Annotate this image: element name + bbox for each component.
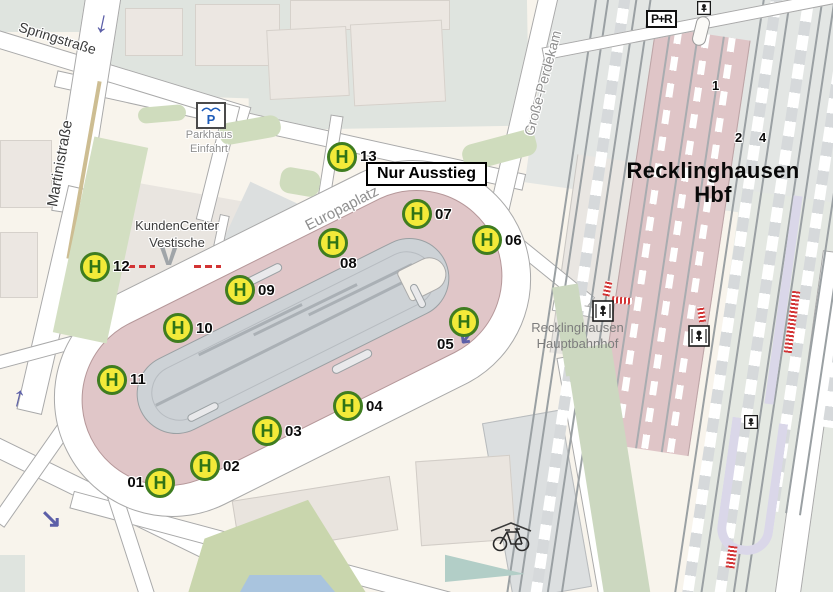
bus-stop-10-number: 10 (196, 320, 213, 337)
h-letter: H (481, 230, 494, 251)
elevator-icon (744, 415, 758, 434)
bus-stop-07: H (402, 199, 432, 229)
kundencenter-label: KundenCenter Vestische (123, 218, 231, 252)
h-letter: H (458, 312, 471, 333)
building (125, 8, 183, 56)
oneway-arrow-downright: ↘ (40, 505, 62, 531)
green-patch (137, 104, 186, 124)
h-letter: H (106, 370, 119, 391)
bus-stop-09: H (225, 275, 255, 305)
h-letter: H (327, 233, 340, 254)
h-letter: H (89, 257, 102, 278)
bicycle-parking-icon (487, 520, 535, 557)
building (0, 232, 38, 298)
bus-stop-08: H (318, 228, 348, 258)
bus-stop-05-number: 05 (437, 336, 454, 353)
h-letter: H (234, 280, 247, 301)
parking-p-letter: P (207, 112, 216, 127)
city-map: P P+R (0, 0, 833, 592)
bus-stop-12: H (80, 252, 110, 282)
green-patch (278, 166, 322, 199)
bus-stop-06-number: 06 (505, 232, 522, 249)
h-letter: H (154, 473, 167, 494)
bus-stop-13: H (327, 142, 357, 172)
pond (240, 575, 335, 592)
bus-stop-01: H (145, 468, 175, 498)
hauptbahnhof-label: Recklinghausen Hauptbahnhof (515, 320, 640, 353)
h-letter: H (172, 318, 185, 339)
elevator-icon (592, 300, 614, 327)
building (266, 26, 350, 100)
parkhaus-line2: Einfahrt (178, 142, 240, 156)
bus-stop-02-number: 02 (223, 458, 240, 475)
bus-stop-04-number: 04 (366, 398, 383, 415)
nur-ausstieg-box: Nur Ausstieg (366, 162, 487, 186)
elevator-icon (688, 325, 710, 352)
platform-number-4: 4 (759, 130, 766, 145)
bus-stop-11-number: 11 (130, 371, 146, 388)
bus-stop-03-number: 03 (285, 423, 302, 440)
red-dash-line (194, 265, 221, 268)
hauptbahnhof-line2: Hauptbahnhof (515, 336, 640, 352)
station-title-line1: Recklinghausen (598, 158, 828, 184)
bus-stop-03: H (252, 416, 282, 446)
bus-stop-06: H (472, 225, 502, 255)
kundencenter-line2: Vestische (123, 235, 231, 252)
hauptbahnhof-line1: Recklinghausen (515, 320, 640, 336)
h-letter: H (199, 456, 212, 477)
bus-stop-01-number: 01 (122, 474, 144, 491)
park-and-ride-sign: P+R (646, 10, 677, 28)
h-letter: H (261, 421, 274, 442)
block-bottomleft-corner (0, 555, 25, 592)
bus-stop-04: H (333, 391, 363, 421)
bus-stop-12-number: 12 (113, 258, 130, 275)
red-dash-line (128, 265, 155, 268)
bus-stop-09-number: 09 (258, 282, 275, 299)
platform-number-2: 2 (735, 130, 742, 145)
parking-garage-icon: P (196, 102, 226, 134)
h-letter: H (411, 204, 424, 225)
h-letter: H (336, 147, 349, 168)
bus-stop-11: H (97, 365, 127, 395)
bus-stop-10: H (163, 313, 193, 343)
station-title-line2: Hbf (598, 182, 828, 208)
bus-stop-08-number: 08 (340, 255, 357, 272)
h-letter: H (342, 396, 355, 417)
platform-number-1: 1 (712, 78, 719, 93)
bus-stop-05: H (449, 307, 479, 337)
bus-stop-02: H (190, 451, 220, 481)
kundencenter-line1: KundenCenter (123, 218, 231, 235)
building (350, 20, 446, 107)
elevator-icon (697, 1, 711, 20)
bus-stop-07-number: 07 (435, 206, 452, 223)
